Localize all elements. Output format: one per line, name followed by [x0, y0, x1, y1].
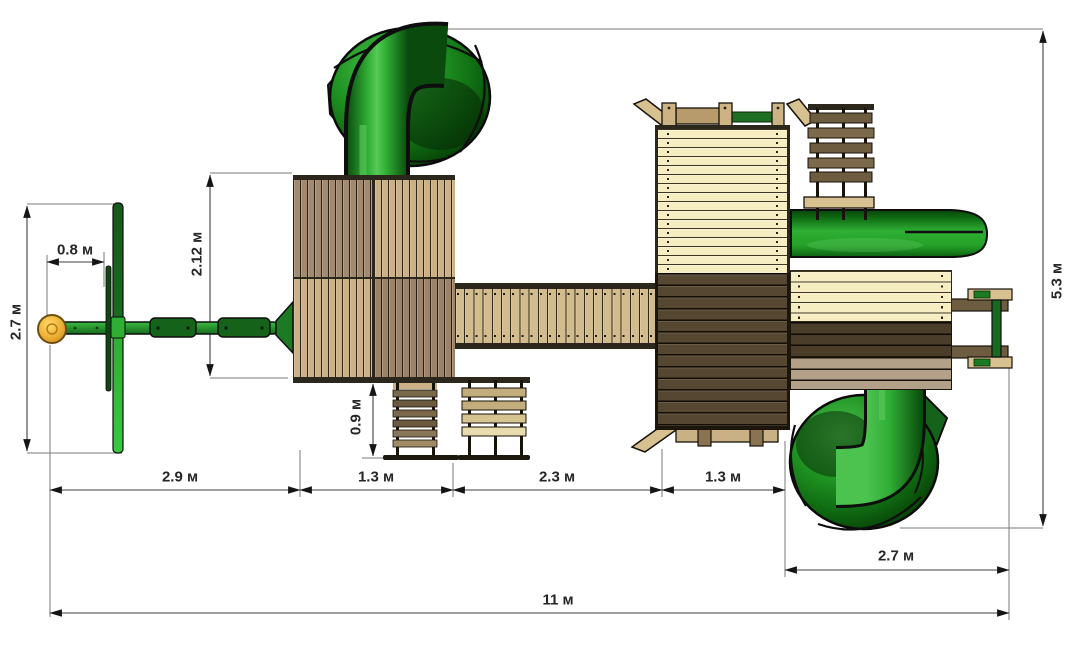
climbing-wall-lower [458, 380, 530, 460]
climb-bar [808, 158, 874, 168]
tower-quadrant [293, 279, 372, 377]
tire-swing-seat [38, 315, 66, 343]
dim-label-total-width: 11 м [542, 592, 573, 609]
swing-assembly [38, 203, 293, 453]
spiral-tube-slide-bottom [790, 386, 947, 530]
dim-label-swing-span: 2.9 м [162, 469, 198, 486]
tower-quadrant [293, 180, 372, 277]
climb-bar [810, 172, 872, 182]
straight-slide [791, 210, 987, 257]
climb-bar [810, 113, 872, 123]
dim-label-swing-offset: 0.8 м [57, 242, 93, 259]
climb-bar [462, 388, 526, 397]
right-tower-upper [655, 125, 790, 273]
right-tower-lower [655, 273, 790, 430]
slide-edge [730, 112, 773, 122]
bridge [455, 283, 657, 349]
handle-bar [992, 300, 1001, 357]
dim-label-swing-depth: 2.7 м [8, 304, 25, 340]
bridge-deck [455, 289, 657, 343]
beam-bracket [276, 302, 293, 353]
climbing-wall-upper [804, 104, 874, 220]
entry-handles [950, 289, 1012, 368]
dim-label-slide-zone: 2.7 м [878, 548, 914, 565]
climb-bar [462, 427, 526, 436]
dim-label-tower-depth: 2.12 м [189, 232, 206, 276]
rung [393, 440, 437, 447]
rung [393, 410, 437, 417]
tower-quadrant [374, 180, 455, 277]
dim-label-ladder-depth: 0.9 м [348, 399, 365, 435]
right-platform-upper [790, 270, 952, 322]
climb-bar [462, 401, 526, 410]
right-tower-top-frame [634, 99, 816, 128]
climb-bar [810, 143, 872, 153]
dim-label-right-tower: 1.3 м [705, 469, 741, 486]
dim-label-left-tower: 1.3 м [358, 469, 394, 486]
dim-label-total-depth: 5.3 м [1049, 263, 1066, 299]
left-tower [293, 175, 455, 383]
playground-plan-canvas: 0.8 м 2.7 м 2.12 м 0.9 м 2.9 м 1.3 м 2.3… [0, 0, 1080, 652]
climb-rail [804, 197, 874, 208]
dim-label-bridge: 2.3 м [539, 469, 575, 486]
climb-bar [462, 414, 526, 423]
swing-crossbar-rear [106, 266, 111, 391]
bridge-rail [455, 343, 657, 349]
crossbar-clamp [111, 317, 125, 338]
rung [393, 400, 437, 407]
right-platform-lower [790, 356, 952, 390]
spiral-tube-slide-top [328, 28, 490, 178]
rung [393, 430, 437, 437]
rung [393, 390, 437, 397]
climb-bar [808, 128, 874, 138]
top-beam [676, 108, 720, 124]
right-platform-mid [790, 322, 952, 356]
tower-rail [293, 377, 455, 383]
tower-quadrant [374, 279, 455, 377]
rung [393, 420, 437, 427]
